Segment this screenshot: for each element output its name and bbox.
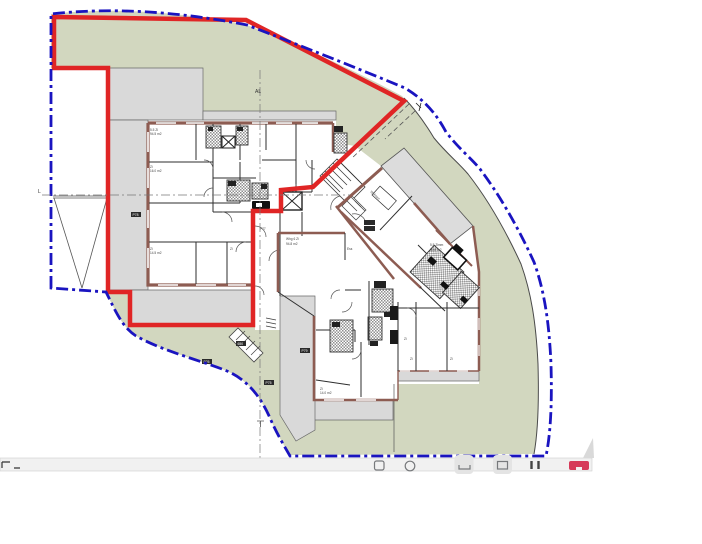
svg-text:Zi: Zi bbox=[410, 357, 413, 361]
svg-text:Zi: Zi bbox=[230, 247, 233, 251]
svg-text:16.0 m2: 16.0 m2 bbox=[150, 169, 162, 173]
svg-text:P78: P78 bbox=[133, 213, 139, 217]
svg-text:Whg 6 Zi: Whg 6 Zi bbox=[286, 237, 299, 241]
svg-text:80.8 m2: 80.8 m2 bbox=[430, 248, 442, 252]
svg-text:Zi: Zi bbox=[450, 357, 453, 361]
svg-text:Zi: Zi bbox=[404, 337, 407, 341]
svg-text:94.8 m2: 94.8 m2 bbox=[286, 242, 298, 246]
svg-text:650: 650 bbox=[238, 342, 244, 346]
svg-text:Ess: Ess bbox=[347, 247, 353, 251]
svg-text:14.5 m2: 14.5 m2 bbox=[150, 251, 162, 255]
svg-text:L: L bbox=[38, 189, 41, 195]
svg-text:94.5 m2: 94.5 m2 bbox=[150, 132, 162, 136]
svg-text:5.5 Zimm: 5.5 Zimm bbox=[430, 243, 444, 247]
svg-text:AL: AL bbox=[255, 89, 261, 95]
svg-text:P77: P77 bbox=[260, 227, 266, 231]
svg-text:P79: P79 bbox=[302, 349, 308, 353]
svg-text:14.0 m2: 14.0 m2 bbox=[320, 391, 332, 395]
svg-text:P75: P75 bbox=[266, 381, 272, 385]
